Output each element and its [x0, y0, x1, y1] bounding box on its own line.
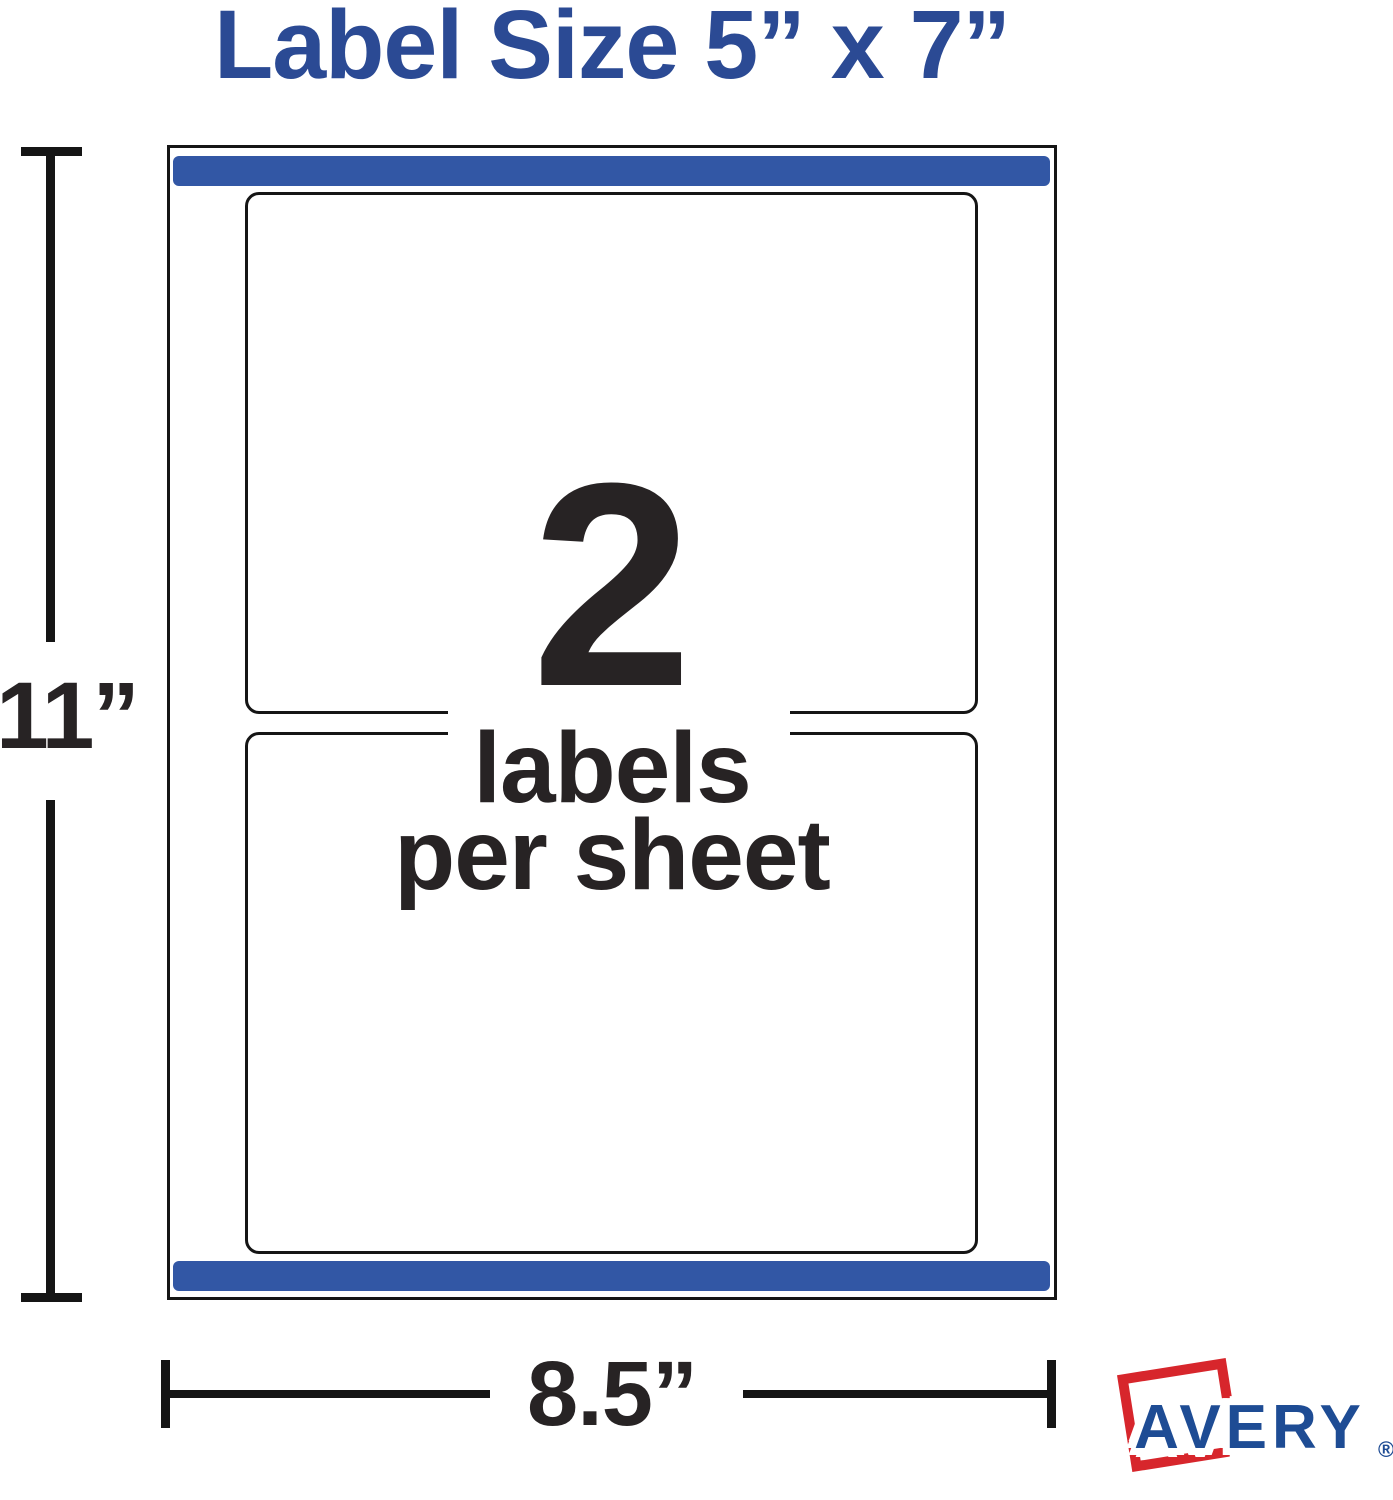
width-dimension-line-right: [743, 1390, 1053, 1398]
sheet-bottom-strip: [173, 1261, 1050, 1291]
sheet-top-strip: [173, 156, 1050, 186]
page-title: Label Size 5” x 7”: [147, 0, 1077, 114]
height-dimension-bottom-cap: [21, 1293, 82, 1302]
product-diagram: Label Size 5” x 7” 2 labels per sheet 11…: [0, 0, 1393, 1500]
width-dimension-right-tick: [1047, 1360, 1056, 1428]
label-count-caption-line2: per sheet: [167, 812, 1057, 899]
registered-trademark-symbol: ®: [1378, 1437, 1393, 1463]
labels-per-sheet-callout: 2 labels per sheet: [167, 452, 1057, 899]
height-dimension-label: 11”: [0, 662, 120, 771]
height-dimension-line-lower: [46, 800, 55, 1298]
height-dimension-line-upper: [46, 147, 55, 642]
avery-logo-wordmark: AVERY: [1100, 1392, 1393, 1463]
label-count: 2: [167, 452, 1057, 719]
